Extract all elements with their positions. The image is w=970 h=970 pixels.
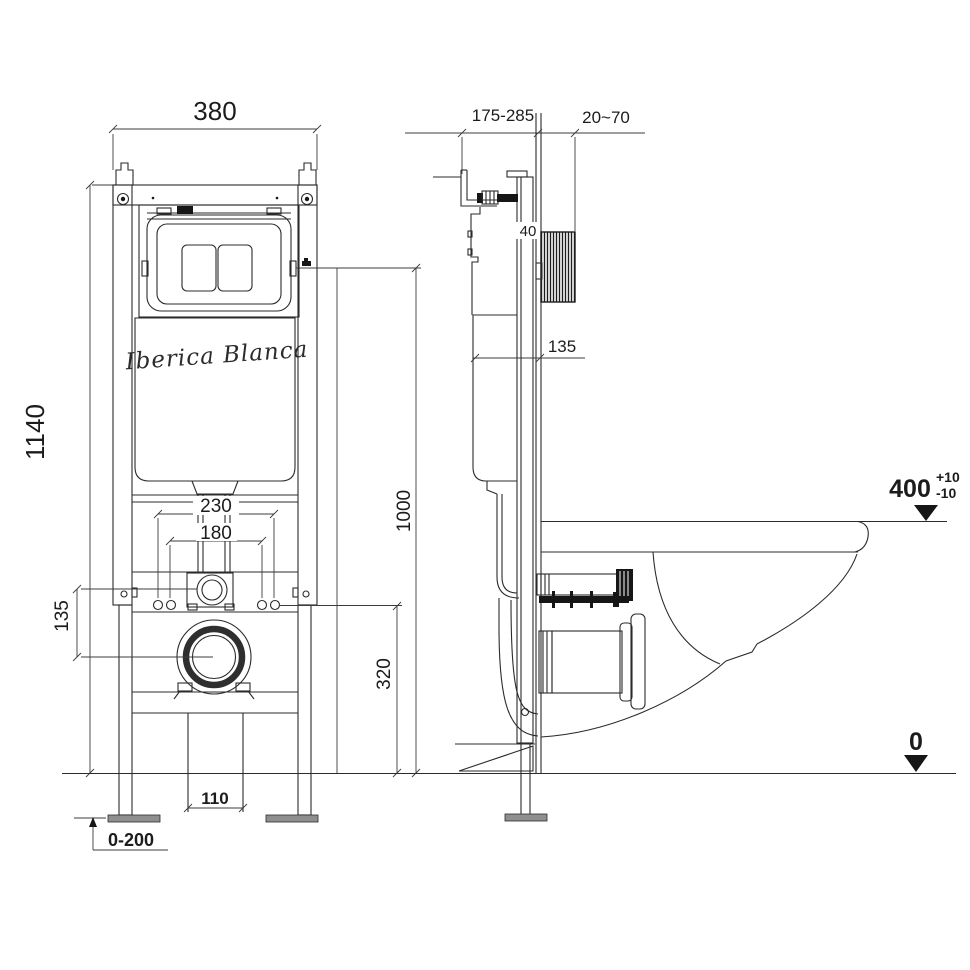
rim-height-label: 400 <box>889 475 931 503</box>
flush-button-large <box>218 245 252 291</box>
flush-button-small <box>182 245 216 291</box>
rim-tolerance-plus: +10 <box>936 469 960 485</box>
drain-socket-front <box>174 620 254 699</box>
dim-label-leg-adjustment: 0-200 <box>108 830 154 850</box>
left-foot <box>108 815 160 822</box>
dim-frame-height: 1140 <box>20 181 113 777</box>
dim-label-mounting-depth: 175-285 <box>472 106 534 125</box>
dim-label-cistern-offset: 135 <box>548 337 576 356</box>
dim-label-fixing-outer: 230 <box>200 496 232 517</box>
right-leg <box>298 605 311 815</box>
left-hanger-bracket <box>116 163 133 185</box>
floor-level-label: 0 <box>909 728 923 756</box>
dim-actuator-height: 1000 <box>296 258 421 777</box>
adjustment-rod <box>497 194 518 202</box>
wall-fixing-stud-side <box>537 569 633 608</box>
actuator-symbol <box>302 258 311 266</box>
dim-fixing-outer: 230 <box>154 496 278 598</box>
dim-label-frame-height: 1140 <box>20 404 50 460</box>
fixing-bolt-holes <box>154 601 280 610</box>
water-inlet-fitting <box>187 573 234 610</box>
dim-cistern-wall-offset: 135 <box>471 337 585 362</box>
drain-connector-side <box>539 614 645 709</box>
dim-label-inlet-drain: 135 <box>52 600 73 632</box>
level-triangle-icon <box>914 505 938 521</box>
drawing-canvas: Iberica Blanca <box>0 0 970 970</box>
toilet-bowl-side <box>541 522 868 738</box>
flush-plate-assembly <box>139 205 299 317</box>
toilet-frame-technical-drawing: Iberica Blanca <box>0 0 970 970</box>
right-foot <box>266 815 318 822</box>
dimensions: 380 1140 135 230 <box>20 96 645 850</box>
right-hanger-bracket <box>299 163 316 185</box>
drain-flange <box>631 614 645 709</box>
level-triangle-icon <box>904 755 928 772</box>
cistern-neck <box>192 481 238 494</box>
front-view: Iberica Blanca <box>108 163 318 822</box>
dim-label-drain-height: 320 <box>374 658 395 690</box>
flush-plate-outer <box>147 215 291 311</box>
dim-label-actuator-height: 1000 <box>394 490 415 532</box>
dim-fixing-inner: 180 <box>166 523 266 598</box>
rim-level-marker: 400 +10 -10 <box>889 469 960 521</box>
side-foot <box>505 814 547 821</box>
dim-rail-depth: 40 <box>516 222 540 240</box>
dim-mounting-depth: 175-285 20~70 <box>405 106 645 231</box>
dim-label-frame-width: 380 <box>193 96 236 126</box>
dim-label-outlet-width: 110 <box>201 789 228 808</box>
rim-tolerance-minus: -10 <box>936 485 956 501</box>
dim-frame-width: 380 <box>109 96 321 170</box>
plate-top-clip <box>177 206 193 214</box>
wall-bracket <box>433 170 518 206</box>
side-view <box>433 113 868 821</box>
cistern-front: Iberica Blanca <box>124 318 309 494</box>
dim-outlet-width: 110 <box>184 789 247 812</box>
flush-plate-inner <box>157 224 281 304</box>
brand-logo: Iberica Blanca <box>124 337 309 376</box>
dim-label-wall-finish: 20~70 <box>582 108 630 127</box>
drain-bend-behind-wall <box>455 598 538 771</box>
flush-plate-box-side <box>536 232 575 302</box>
left-leg <box>119 605 132 815</box>
cistern-side <box>468 207 519 598</box>
floor-level-marker: 0 <box>904 728 928 772</box>
dim-label-rail-depth: 40 <box>520 223 537 240</box>
dim-label-fixing-inner: 180 <box>200 523 232 544</box>
